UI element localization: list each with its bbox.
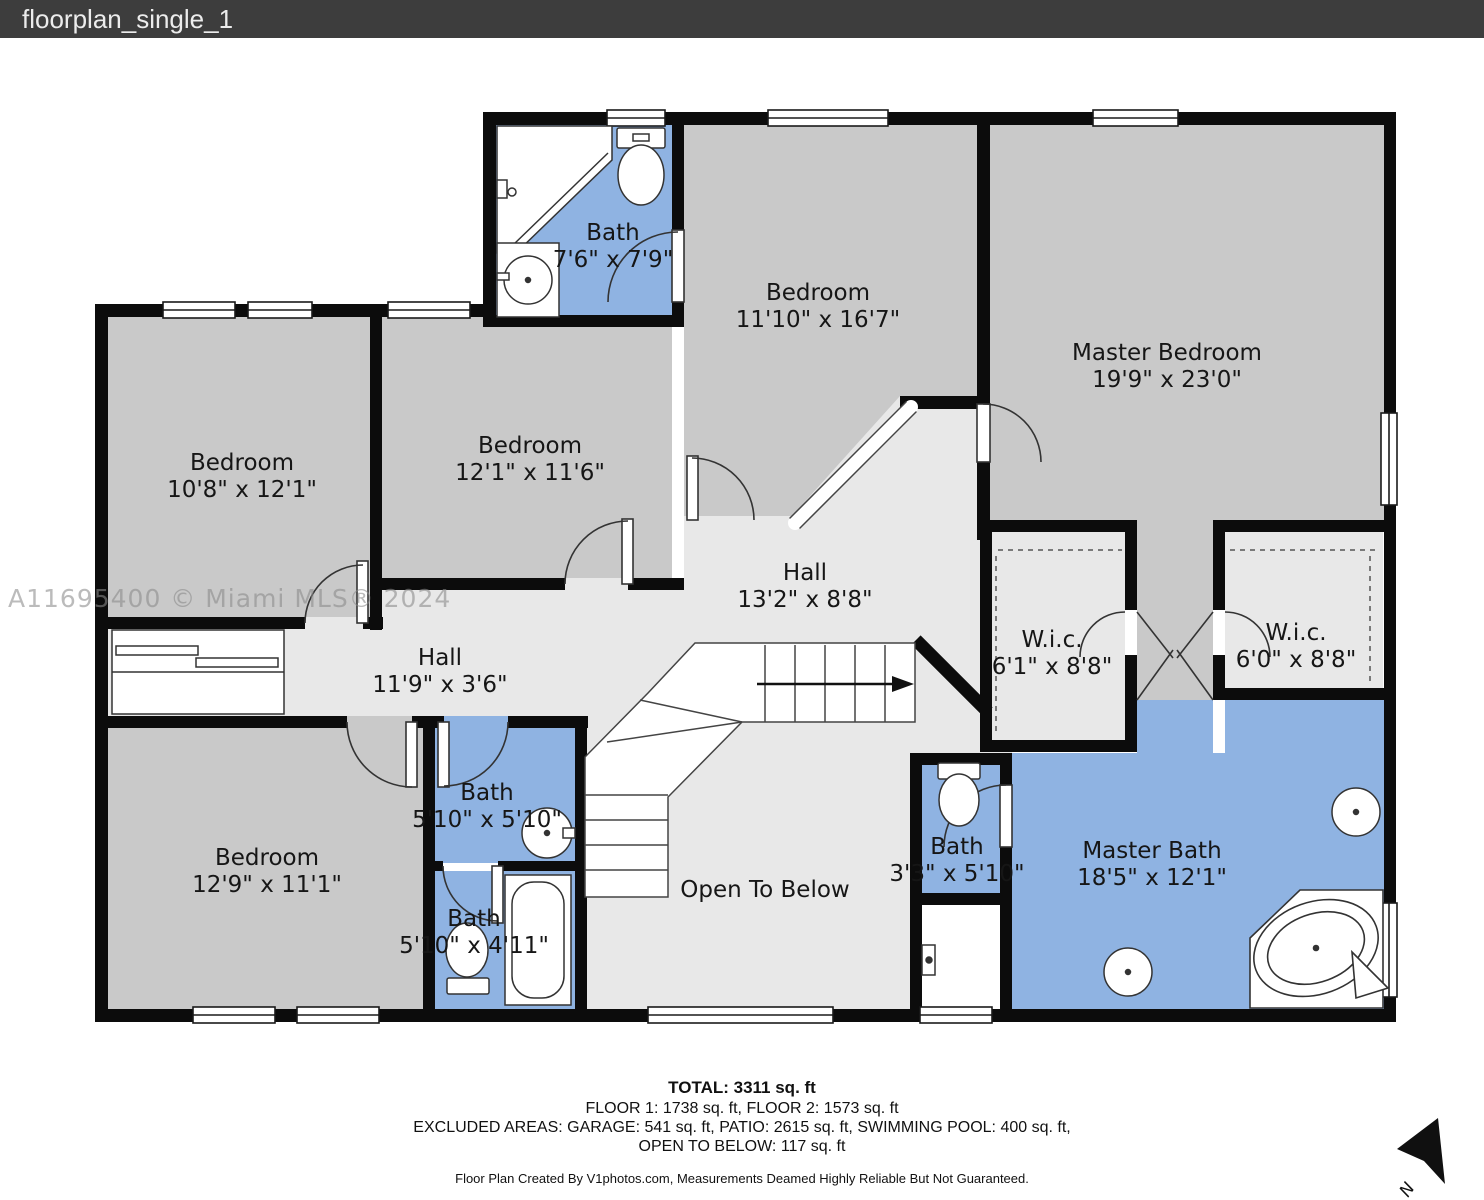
room-name: Master Bath — [1032, 838, 1272, 865]
room-label-bedroom-12-1: Bedroom 12'1" x 11'6" — [410, 433, 650, 487]
room-dims: 6'1" x 8'8" — [972, 654, 1132, 681]
room-fill-master-passage — [1137, 520, 1213, 702]
room-dims: 19'9" x 23'0" — [1047, 367, 1287, 394]
wall-segment — [980, 740, 1137, 752]
room-name: Bedroom — [698, 280, 938, 307]
room-dims: 7'6" x 7'9" — [493, 247, 733, 274]
room-fill-master-bedroom — [990, 124, 1384, 520]
wall-segment — [95, 1009, 1396, 1022]
room-label-wic-1: W.i.c. 6'1" x 8'8" — [972, 627, 1132, 681]
room-label-bedroom-12-9: Bedroom 12'9" x 11'1" — [147, 845, 387, 899]
room-name: Open To Below — [645, 877, 885, 904]
room-dims: 12'1" x 11'6" — [410, 460, 650, 487]
room-name: Hall — [685, 560, 925, 587]
wall-segment — [95, 304, 496, 317]
room-dims: 5'10" x 4'11" — [354, 933, 594, 960]
room-dims: 13'2" x 8'8" — [685, 587, 925, 614]
room-name: Bedroom — [410, 433, 650, 460]
wall-segment — [628, 578, 684, 590]
room-name: Bedroom — [147, 845, 387, 872]
wall-segment — [1213, 688, 1384, 700]
room-fill-open-to-below — [587, 716, 910, 1009]
room-name: Bath — [354, 906, 594, 933]
wall-segment — [1384, 112, 1396, 1022]
wall-segment — [1213, 520, 1225, 610]
room-dims: 12'9" x 11'1" — [147, 872, 387, 899]
window-titlebar: floorplan_single_1 — [0, 0, 1484, 38]
wall-segment — [672, 112, 684, 232]
room-dims: 11'10" x 16'7" — [698, 307, 938, 334]
plan-summary: TOTAL: 3311 sq. ft FLOOR 1: 1738 sq. ft,… — [0, 1078, 1484, 1186]
wall-segment — [483, 112, 1396, 125]
total-area: TOTAL: 3311 sq. ft — [0, 1078, 1484, 1098]
excluded-areas-line2: OPEN TO BELOW: 117 sq. ft — [0, 1138, 1484, 1156]
wall-segment — [900, 396, 990, 409]
wall-segment — [977, 112, 990, 404]
wall-segment — [363, 617, 383, 629]
room-label-hall-upper: Hall 13'2" x 8'8" — [685, 560, 925, 614]
room-name: W.i.c. — [972, 627, 1132, 654]
wall-segment — [95, 304, 108, 1022]
room-dims: 6'0" x 8'8" — [1216, 647, 1376, 674]
room-dims: 3'3" x 5'10" — [877, 861, 1037, 888]
mls-watermark: A11695400 © Miami MLS® 2024 — [8, 584, 451, 613]
room-name: Bedroom — [122, 450, 362, 477]
room-label-bath-5-10-5-10: Bath 5'10" x 5'10" — [367, 780, 607, 834]
room-label-open-to-below: Open To Below — [645, 877, 885, 904]
page: floorplan_single_1 — [0, 0, 1484, 1200]
wall-segment — [1213, 520, 1384, 532]
wall-segment — [107, 716, 347, 728]
room-dims: 5'10" x 5'10" — [367, 807, 607, 834]
room-name: W.i.c. — [1216, 620, 1376, 647]
wall-segment — [498, 861, 575, 871]
room-name: Hall — [320, 645, 560, 672]
room-fill-master-bath-right — [1225, 700, 1384, 753]
wall-segment — [433, 861, 443, 871]
room-name: Bath — [493, 220, 733, 247]
wall-segment — [980, 520, 1137, 532]
credit-line: Floor Plan Created By V1photos.com, Meas… — [0, 1171, 1484, 1186]
room-label-bath-top: Bath 7'6" x 7'9" — [493, 220, 733, 274]
room-dims: 11'9" x 3'6" — [320, 672, 560, 699]
floor-areas: FLOOR 1: 1738 sq. ft, FLOOR 2: 1573 sq. … — [0, 1100, 1484, 1118]
room-dims: 10'8" x 12'1" — [122, 477, 362, 504]
room-dims: 18'5" x 12'1" — [1032, 865, 1272, 892]
room-label-bath-5-10-4-11: Bath 5'10" x 4'11" — [354, 906, 594, 960]
wall-segment — [95, 617, 305, 629]
wall-segment — [1125, 520, 1137, 610]
window-title: floorplan_single_1 — [22, 4, 233, 35]
room-label-wic-2: W.i.c. 6'0" x 8'8" — [1216, 620, 1376, 674]
room-label-hall-lower: Hall 11'9" x 3'6" — [320, 645, 560, 699]
wall-segment — [910, 753, 1012, 765]
room-label-master-bath: Master Bath 18'5" x 12'1" — [1032, 838, 1272, 892]
room-fill-stair-landing — [587, 642, 915, 716]
room-label-bath-3-3: Bath 3'3" x 5'10" — [877, 834, 1037, 888]
room-label-bedroom-11-10: Bedroom 11'10" x 16'7" — [698, 280, 938, 334]
room-name: Bath — [367, 780, 607, 807]
room-name: Bath — [877, 834, 1037, 861]
wall-segment — [483, 112, 496, 318]
room-name: Master Bedroom — [1047, 340, 1287, 367]
excluded-areas-line1: EXCLUDED AREAS: GARAGE: 541 sq. ft, PATI… — [0, 1119, 1484, 1137]
room-label-master-bedroom: Master Bedroom 19'9" x 23'0" — [1047, 340, 1287, 394]
wc-fixture-icon — [922, 945, 935, 975]
wall-segment — [575, 716, 587, 1009]
wall-segment — [483, 315, 684, 327]
wall-segment — [910, 893, 1012, 905]
room-label-bedroom-10-8: Bedroom 10'8" x 12'1" — [122, 450, 362, 504]
room-fill-master-bath-entry — [1137, 700, 1213, 753]
